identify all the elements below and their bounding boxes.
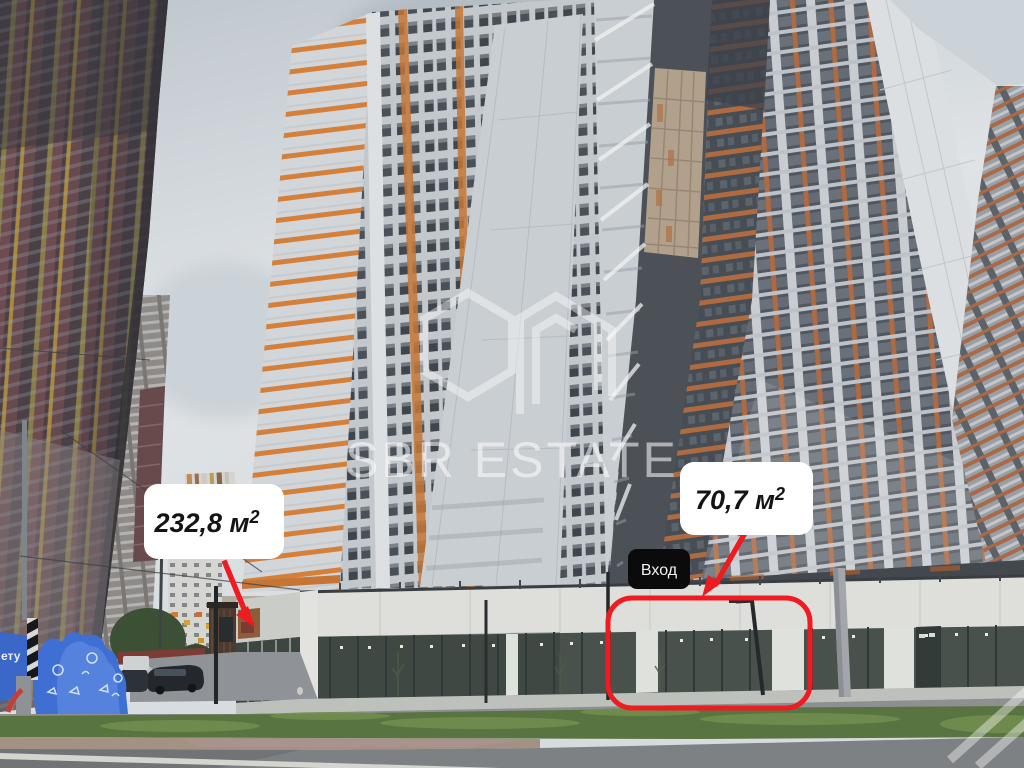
svg-text:SBR ESTATE: SBR ESTATE [345, 432, 679, 488]
svg-text:70,7 м2: 70,7 м2 [695, 484, 785, 515]
svg-text:232,8 м2: 232,8 м2 [153, 507, 259, 538]
svg-text:ету: ету [1, 649, 21, 663]
svg-text:Вход: Вход [641, 562, 678, 579]
